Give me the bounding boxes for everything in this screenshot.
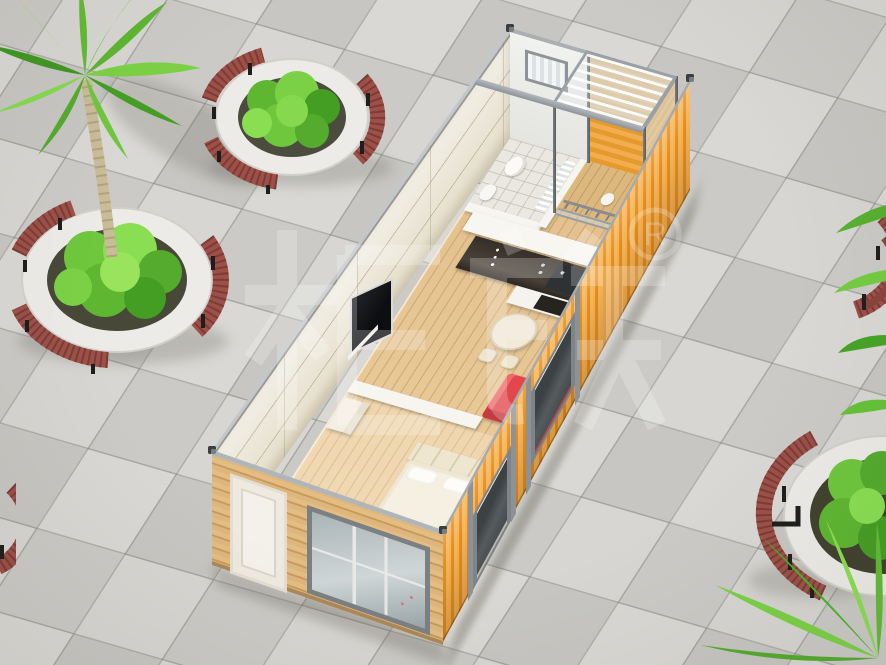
watermark-strokes	[245, 230, 665, 430]
frame-post	[553, 101, 556, 213]
corner-fitting	[208, 446, 216, 454]
bench-left-edge	[0, 483, 16, 575]
corner-fitting	[439, 526, 447, 534]
registered-trademark-icon: R	[631, 210, 679, 258]
palm-tree-top-left	[0, 0, 260, 277]
palm-fronds-right-edge	[832, 175, 886, 455]
front-door	[230, 473, 287, 593]
render-scene: R 柜族 ®	[0, 0, 886, 665]
corner-fitting	[686, 74, 694, 82]
corner-fitting	[506, 24, 514, 32]
registered-letter: R	[643, 216, 666, 252]
palm-fronds-bottom-right	[688, 508, 886, 665]
watermark: R	[225, 200, 695, 460]
